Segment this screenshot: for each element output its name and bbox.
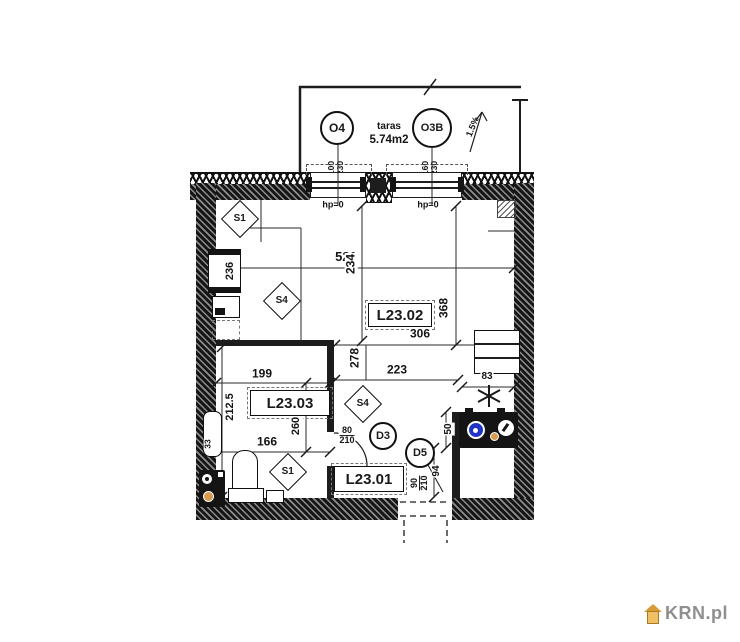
stove-knob-orange-icon — [490, 432, 499, 441]
symbol-s4-hall: S4 — [344, 385, 382, 423]
dim-278: 278 — [349, 347, 362, 369]
room-label-bathroom-text: L23.03 — [267, 395, 314, 412]
window-o4-frame-line — [311, 187, 365, 189]
stove-stub-2 — [497, 408, 505, 413]
dim-368: 368 — [438, 297, 451, 319]
door-mark-d5-label: D5 — [413, 447, 427, 459]
dim-260: 260 — [291, 416, 303, 436]
floor-plan: O4 O3B taras 5.74m2 1.5% 100230 160230 h… — [0, 0, 740, 642]
right-wall-lining — [497, 200, 516, 218]
cabinet-box — [212, 296, 240, 318]
washing-machine-door-center — [205, 477, 209, 481]
bath-counter — [266, 490, 284, 503]
room-label-living-text: L23.02 — [377, 307, 424, 324]
window-o3b — [392, 172, 462, 198]
window-mark-o3b-label: O3B — [421, 122, 444, 134]
window-mark-o4: O4 — [320, 111, 354, 145]
dim-236: 236 — [225, 261, 237, 281]
cabinet-box-dashed — [212, 320, 240, 340]
stove-burner-blue-icon — [467, 421, 485, 439]
fridge-asterisk-icon — [478, 385, 500, 407]
stove-unit — [459, 412, 518, 448]
dimension-lines — [216, 206, 514, 497]
stove-dial-icon — [498, 420, 514, 436]
washing-machine — [199, 470, 225, 507]
bathroom-wall-top — [216, 340, 334, 346]
cabinet-box-detail — [215, 308, 225, 315]
window-o4 — [310, 172, 366, 198]
shower-tub — [203, 411, 222, 457]
bathroom-wall-right-down — [327, 466, 334, 498]
washing-machine-panel — [218, 472, 223, 477]
room-label-living: L23.02 — [368, 303, 432, 327]
room-label-hall: L23.01 — [334, 466, 404, 492]
washbasin — [228, 488, 264, 503]
dim-50: 50 — [444, 422, 455, 435]
watermark-brand: KRN.pl — [665, 603, 728, 624]
stove-burner-highlight — [473, 428, 478, 433]
kitchen-shelf-1 — [475, 343, 519, 345]
bottom-wall-left — [196, 498, 398, 520]
terrace-slope: 1.5% — [464, 115, 481, 139]
window-cap-3 — [390, 177, 396, 192]
washing-machine-door-icon — [202, 474, 212, 484]
washing-machine-knob-icon — [203, 491, 214, 502]
dim-199: 199 — [251, 368, 273, 381]
entrance-door-dashes — [400, 502, 450, 543]
window-o3b-frame-line — [393, 187, 461, 189]
watermark-house-icon — [644, 604, 662, 624]
window-mark-o4-label: O4 — [329, 121, 345, 135]
dim-306: 306 — [409, 328, 431, 341]
door-mark-d3-label: D3 — [376, 430, 390, 442]
window-o4-header-note: hp=0 — [321, 200, 344, 209]
terrace-name: taras — [376, 122, 402, 133]
stove-stub-1 — [465, 408, 473, 413]
dim-94: 94 — [432, 464, 443, 477]
window-o3b-glass-line — [393, 181, 461, 183]
dim-212-5: 212.5 — [225, 392, 237, 422]
door-mark-d3: D3 — [369, 422, 397, 450]
kitchen-shelf-2 — [475, 357, 519, 359]
window-mark-o3b: O3B — [412, 108, 452, 148]
room-label-hall-text: L23.01 — [346, 471, 393, 488]
radiator-bottom — [209, 287, 240, 292]
window-cap-1 — [306, 177, 312, 192]
radiator-top — [209, 250, 240, 255]
dim-223: 223 — [386, 364, 408, 377]
bottom-wall-right — [452, 498, 534, 520]
window-cap-2 — [360, 177, 366, 192]
room-label-bathroom: L23.03 — [250, 390, 330, 416]
terrace-area: 5.74m2 — [368, 134, 409, 146]
window-o4-glass-line — [311, 181, 365, 183]
window-pier-core — [370, 178, 386, 193]
watermark: KRN.pl — [644, 603, 728, 624]
dim-234: 234 — [345, 253, 358, 275]
window-o3b-header-note: hp=0 — [416, 200, 439, 209]
door-d3-size: 80210 — [338, 426, 355, 446]
symbol-s1-top: S1 — [221, 200, 259, 238]
door-d5-size: 90210 — [410, 474, 430, 491]
door-mark-d5: D5 — [405, 438, 435, 468]
dim-83: 83 — [480, 372, 493, 383]
window-cap-4 — [458, 177, 464, 192]
symbol-s1-bath: S1 — [269, 453, 307, 491]
stove-dial-pointer — [502, 423, 510, 432]
bathroom-wall-right-up — [327, 346, 334, 432]
symbol-s4-mid: S4 — [263, 282, 301, 320]
dim-166: 166 — [256, 436, 278, 449]
kitchen-cabinet — [474, 330, 520, 374]
dim-33: 33 — [204, 438, 213, 449]
toilet — [232, 450, 258, 492]
